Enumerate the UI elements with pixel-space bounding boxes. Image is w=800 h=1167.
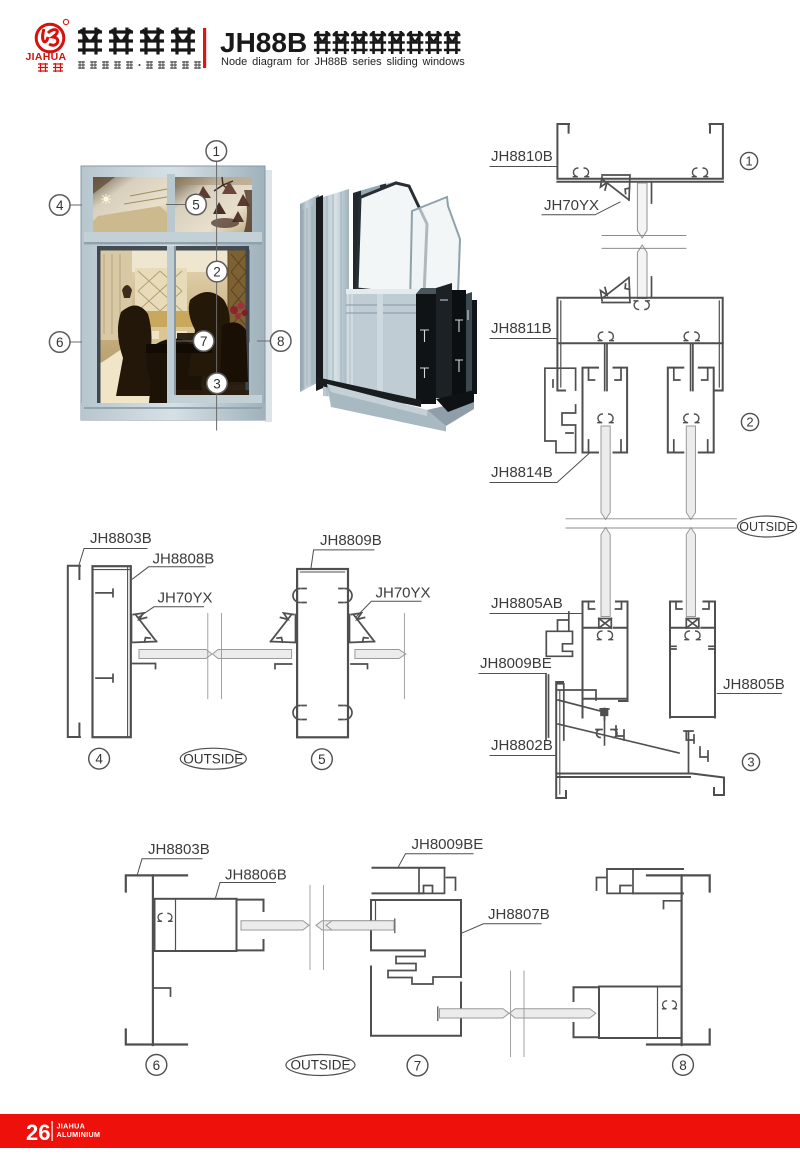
svg-text:JH88B: JH88B xyxy=(220,27,307,58)
svg-text:4: 4 xyxy=(56,198,64,213)
svg-text:JH8803B: JH8803B xyxy=(148,841,210,858)
svg-text:26: 26 xyxy=(26,1120,50,1145)
svg-text:JH70YX: JH70YX xyxy=(376,585,431,602)
svg-text:JH8808B: JH8808B xyxy=(153,551,215,568)
svg-text:1: 1 xyxy=(213,144,221,159)
svg-text:ALUMINIUM: ALUMINIUM xyxy=(57,1130,101,1139)
svg-text:JH8807B: JH8807B xyxy=(488,906,550,923)
svg-text:JH8805B: JH8805B xyxy=(723,676,785,693)
svg-text:Node diagram for JH88B series: Node diagram for JH88B series sliding wi… xyxy=(221,56,465,68)
svg-text:OUTSIDE: OUTSIDE xyxy=(183,751,243,766)
svg-text:1: 1 xyxy=(745,154,752,169)
svg-text:JH8809B: JH8809B xyxy=(320,532,382,549)
svg-text:6: 6 xyxy=(153,1058,161,1073)
svg-text:JH70YX: JH70YX xyxy=(158,590,213,607)
svg-text:JH8009BE: JH8009BE xyxy=(480,655,552,672)
svg-text:8: 8 xyxy=(679,1058,687,1073)
svg-text:JH8803B: JH8803B xyxy=(90,530,152,547)
svg-text:5: 5 xyxy=(318,752,326,767)
svg-text:7: 7 xyxy=(414,1059,422,1074)
svg-text:7: 7 xyxy=(200,334,208,349)
svg-text:JH8814B: JH8814B xyxy=(491,464,553,481)
svg-text:5: 5 xyxy=(192,198,200,213)
svg-text:8: 8 xyxy=(277,334,285,349)
svg-text:2: 2 xyxy=(213,265,221,280)
svg-text:OUTSIDE: OUTSIDE xyxy=(290,1058,350,1073)
svg-text:JIAHUA: JIAHUA xyxy=(26,51,67,63)
svg-text:JH70YX: JH70YX xyxy=(544,197,599,214)
svg-text:3: 3 xyxy=(747,755,754,770)
svg-text:JH8802B: JH8802B xyxy=(491,737,553,754)
svg-text:JH8810B: JH8810B xyxy=(491,148,553,165)
svg-text:JH8009BE: JH8009BE xyxy=(412,836,484,853)
svg-text:JH8806B: JH8806B xyxy=(225,867,287,884)
svg-text:4: 4 xyxy=(95,752,103,767)
svg-text:6: 6 xyxy=(56,335,64,350)
svg-text:OUTSIDE: OUTSIDE xyxy=(739,520,795,534)
svg-text:3: 3 xyxy=(213,376,221,391)
svg-text:JH8811B: JH8811B xyxy=(491,320,552,337)
svg-text:JH8805AB: JH8805AB xyxy=(491,595,563,612)
svg-text:2: 2 xyxy=(746,415,753,430)
